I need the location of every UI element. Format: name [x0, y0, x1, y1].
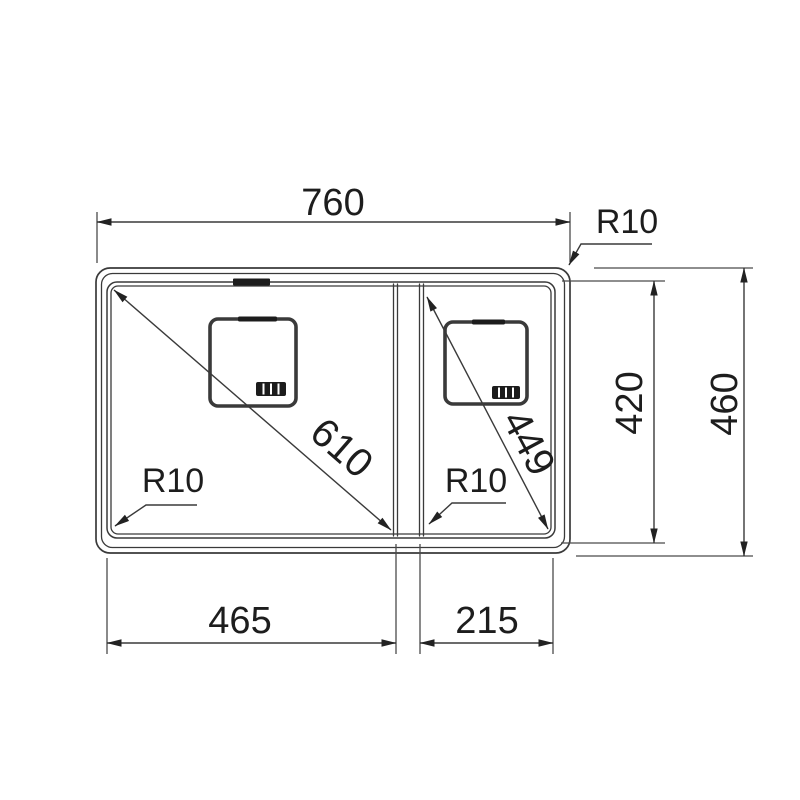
label-small-bowl-width: 215 — [455, 600, 518, 642]
label-main-bowl-corner-radius: R10 — [142, 462, 204, 500]
leader-main-bowl-radius — [115, 505, 197, 526]
leader-outer-radius — [569, 244, 652, 265]
sink-dimension-drawing: 760 R10 460 420 465 215 610 449 R10 R10 — [0, 0, 800, 800]
label-overall-depth: 460 — [704, 372, 746, 435]
ink-details — [233, 279, 520, 400]
sink-technical-drawing-page: 760 R10 460 420 465 215 610 449 R10 R10 — [0, 0, 800, 800]
dimension-labels: 760 R10 460 420 465 215 610 449 R10 R10 — [142, 182, 746, 642]
main-drain-top-detail — [238, 317, 277, 322]
label-main-bowl-diagonal: 610 — [302, 410, 381, 487]
small-drain-top-detail — [472, 320, 505, 325]
leader-small-bowl-radius — [429, 503, 506, 524]
bowl-divider — [394, 284, 424, 536]
label-main-bowl-width: 465 — [208, 600, 271, 642]
overflow-mark — [233, 279, 270, 286]
label-overall-width: 760 — [301, 182, 364, 224]
label-outer-corner-radius: R10 — [596, 203, 658, 241]
label-bowl-depth: 420 — [609, 371, 651, 434]
label-small-bowl-corner-radius: R10 — [445, 462, 507, 500]
